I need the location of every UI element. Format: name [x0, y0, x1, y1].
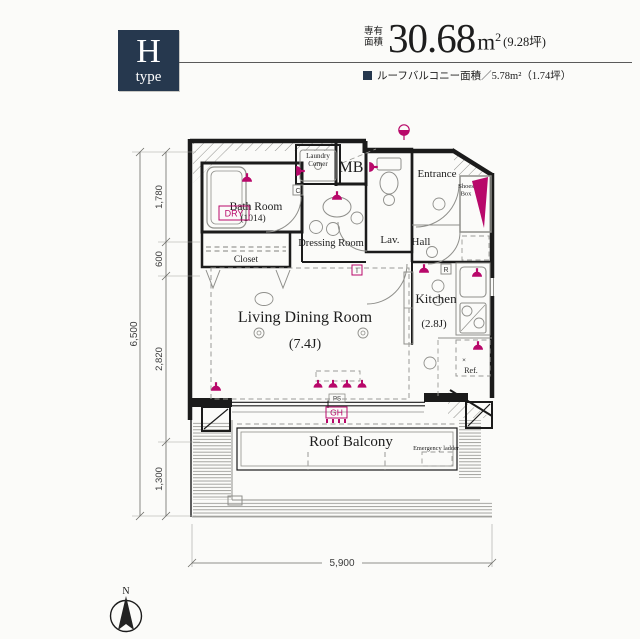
shoes-box-icon — [472, 177, 488, 228]
gh-label: GH — [330, 408, 343, 418]
box-i-label: I — [356, 268, 358, 275]
walls — [190, 139, 494, 517]
box-r-label: R — [443, 267, 448, 274]
compass: N — [111, 586, 142, 632]
dim-left-1: 1,780 — [154, 185, 165, 209]
ps-icon-1 — [314, 380, 323, 388]
shoes-label-1: Shoes — [458, 183, 474, 190]
intercom-icon — [399, 125, 409, 140]
shoes-label-2: Box — [461, 191, 473, 198]
floor-plan-page: H type 専有 面積 30.68 m2 (9.28坪) ルーフバルコニー面積… — [0, 0, 640, 639]
entrance-label: Entrance — [417, 168, 456, 180]
bath-size-label: (1014) — [240, 213, 265, 224]
dim-left-4: 1,300 — [154, 467, 165, 491]
lav-label: Lav. — [380, 234, 399, 246]
bath-faucet-icon — [242, 173, 252, 182]
box-c-label: C — [295, 188, 300, 195]
living-size-label: (7.4J) — [289, 337, 322, 352]
room-labels: Bath Room (1014) DRY Laundry Corner MB L… — [219, 152, 478, 452]
x-mark: × — [462, 357, 466, 364]
kitchen-size-label: (2.8J) — [421, 318, 447, 330]
floor-plan-drawing: Bath Room (1014) DRY Laundry Corner MB L… — [0, 0, 640, 639]
basin-faucet-icon — [332, 191, 342, 200]
balcony-window — [231, 401, 425, 413]
dim-left-2: 600 — [154, 251, 165, 267]
hall-label: Hall — [412, 236, 431, 248]
dim-bottom: 5,900 — [329, 558, 354, 569]
mb-label: MB — [339, 159, 364, 176]
ps-label: PS — [333, 397, 341, 403]
dim-left-total: 6,500 — [129, 321, 140, 346]
gh-marks — [326, 419, 346, 423]
dim-left-3: 2,820 — [154, 347, 165, 371]
ladder-label: Emergency ladder — [413, 445, 460, 452]
dressing-label: Dressing Room — [298, 238, 364, 249]
balcony-label: Roof Balcony — [309, 434, 393, 450]
laundry-label-1: Laundry — [306, 152, 330, 160]
kitchen-label: Kitchen — [415, 291, 457, 306]
ref-outlet-icon — [473, 341, 483, 350]
kitchen-valve-icon — [419, 264, 429, 273]
dry-label: DRY — [225, 209, 244, 219]
laundry-label-2: Corner — [308, 160, 328, 168]
living-label: Living Dining Room — [238, 309, 373, 326]
ldr-outlet-icon — [211, 382, 221, 391]
north-label: N — [122, 586, 129, 597]
sink-faucet-icon — [472, 268, 482, 277]
closet-label: Closet — [234, 255, 259, 265]
ref-label: Ref. — [464, 366, 478, 375]
